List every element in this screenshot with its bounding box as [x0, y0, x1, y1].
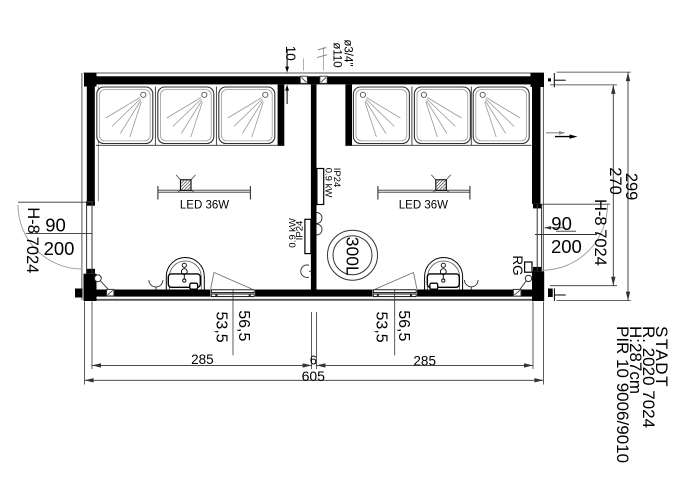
- svg-text:6: 6: [310, 352, 317, 367]
- svg-text:RG: RG: [510, 255, 525, 275]
- svg-text:H-8: H-8: [591, 199, 609, 226]
- svg-text:0.9 kW: 0.9 kW: [323, 168, 334, 198]
- svg-text:10: 10: [283, 46, 298, 61]
- svg-text:LED 36W: LED 36W: [399, 200, 448, 212]
- svg-text:285: 285: [191, 352, 214, 367]
- svg-text:90: 90: [551, 213, 572, 234]
- svg-text:PIR 10 9006/9010: PIR 10 9006/9010: [613, 326, 632, 463]
- svg-text:ø110: ø110: [330, 42, 342, 67]
- svg-text:0.9 kW: 0.9 kW: [287, 218, 298, 248]
- svg-text:299: 299: [622, 173, 640, 201]
- svg-text:7024: 7024: [23, 237, 41, 274]
- svg-text:ø3/4": ø3/4": [342, 39, 354, 66]
- svg-text:200: 200: [44, 238, 75, 259]
- svg-text:605: 605: [302, 368, 326, 384]
- svg-text:56,5: 56,5: [395, 310, 412, 341]
- svg-text:H-8: H-8: [24, 207, 42, 234]
- svg-text:53,5: 53,5: [213, 312, 230, 343]
- svg-text:LED 36W: LED 36W: [180, 200, 229, 212]
- svg-text:300L: 300L: [342, 237, 362, 276]
- svg-text:90: 90: [45, 214, 66, 235]
- svg-text:7024: 7024: [591, 229, 609, 266]
- svg-text:53,5: 53,5: [373, 312, 390, 343]
- svg-text:56,5: 56,5: [235, 310, 252, 341]
- svg-text:200: 200: [551, 236, 582, 257]
- svg-text:270: 270: [606, 167, 624, 195]
- svg-text:285: 285: [413, 354, 436, 369]
